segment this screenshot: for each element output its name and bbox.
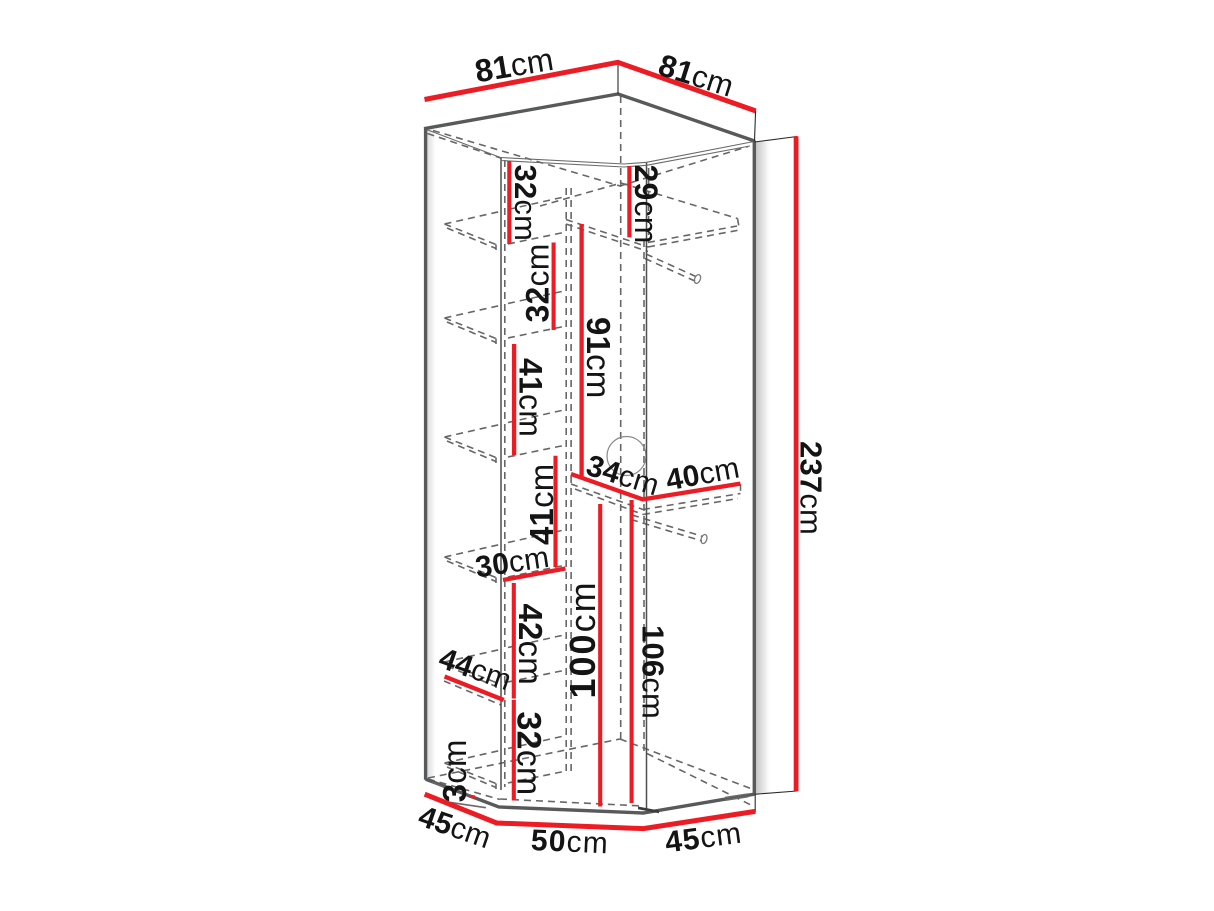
- svg-text:237cm: 237cm: [794, 441, 829, 535]
- svg-text:32cm: 32cm: [510, 712, 548, 796]
- svg-text:41cm: 41cm: [523, 464, 560, 546]
- svg-text:29cm: 29cm: [628, 165, 664, 244]
- svg-text:106cm: 106cm: [636, 625, 671, 719]
- svg-text:100cm: 100cm: [562, 580, 603, 698]
- svg-text:41cm: 41cm: [513, 358, 549, 437]
- svg-text:50cm: 50cm: [530, 824, 610, 860]
- svg-text:91cm: 91cm: [580, 317, 617, 399]
- svg-text:32cm: 32cm: [508, 165, 543, 242]
- svg-text:3cm: 3cm: [436, 739, 473, 802]
- svg-text:42cm: 42cm: [512, 604, 549, 686]
- svg-text:32cm: 32cm: [520, 243, 556, 322]
